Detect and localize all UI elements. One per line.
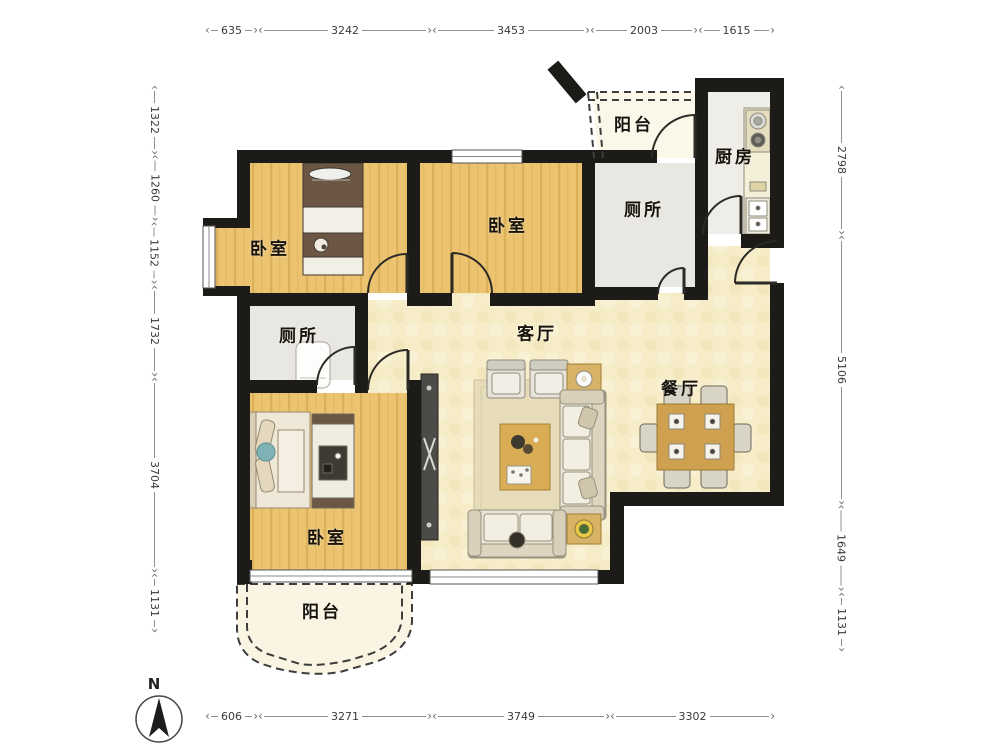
dimension-value: 3242 xyxy=(328,24,362,37)
dimension-line xyxy=(211,30,218,31)
dimension-line xyxy=(155,492,156,567)
master-bed xyxy=(246,412,310,508)
wall xyxy=(684,287,695,300)
dimension-line xyxy=(596,30,627,31)
dimension-line xyxy=(842,91,843,143)
floor-plan-page: 阳台 厨房 厕所 卧室 卧室 客厅 餐厅 厕所 卧室 阳台 635 3242 3… xyxy=(0,0,1000,750)
dimension-line xyxy=(155,91,156,103)
dim-left-5: 1131 xyxy=(147,573,163,633)
dim-top-4: 1615 xyxy=(698,22,775,38)
dim-left-2: 1152 xyxy=(147,222,163,285)
dimension-line xyxy=(841,510,842,531)
dimension-value: 5106 xyxy=(836,353,849,387)
dimension-line xyxy=(842,177,843,229)
dim-top-2: 3453 xyxy=(432,22,590,38)
dim-top-3: 2003 xyxy=(590,22,698,38)
dimension-line xyxy=(264,716,328,717)
room-label-kitchen: 厨房 xyxy=(715,143,755,168)
dimension-line xyxy=(245,30,252,31)
kitchen-counter xyxy=(744,108,772,236)
dim-bottom-0: 606 xyxy=(205,708,258,724)
room-label-toilet-top: 厕所 xyxy=(624,196,664,221)
bedroom-a-wardrobe xyxy=(303,163,363,275)
dimension-value: 1649 xyxy=(835,531,848,565)
wall xyxy=(490,293,595,306)
dimension-line xyxy=(754,30,770,31)
armchair-left xyxy=(487,360,525,398)
sofa-long xyxy=(560,390,606,520)
dimension-value: 3749 xyxy=(504,710,538,723)
wall xyxy=(595,150,657,163)
dimension-line xyxy=(155,348,156,371)
dining-chair xyxy=(732,424,751,452)
dimension-line xyxy=(155,383,156,458)
wall xyxy=(522,150,595,163)
sofa-bottom xyxy=(468,510,566,558)
dimension-line xyxy=(841,565,842,586)
dim-bottom-3: 3302 xyxy=(610,708,775,724)
dimension-line xyxy=(842,598,843,605)
wall xyxy=(407,380,421,584)
dim-top-0: 635 xyxy=(205,22,258,38)
dimension-line xyxy=(245,716,252,717)
dimension-line xyxy=(264,30,328,31)
coffee-table xyxy=(500,424,550,490)
room-label-bedroom-b: 卧室 xyxy=(488,212,528,237)
dim-bottom-1: 3271 xyxy=(258,708,432,724)
room-label-living-room: 客厅 xyxy=(517,320,557,345)
dimension-line xyxy=(710,716,770,717)
compass xyxy=(136,696,182,742)
dimension-line xyxy=(155,137,156,149)
dimension-line xyxy=(155,579,156,586)
room-label-balcony-bottom: 阳台 xyxy=(302,598,342,623)
wall xyxy=(355,300,368,393)
dimension-line xyxy=(842,387,843,499)
dimension-line xyxy=(616,716,676,717)
dimension-line xyxy=(661,30,692,31)
dimension-value: 606 xyxy=(218,710,245,723)
master-wardrobe xyxy=(312,414,354,508)
dimension-line xyxy=(528,30,584,31)
dim-right-0: 2798 xyxy=(834,85,850,235)
dim-left-1: 1260 xyxy=(148,155,164,222)
side-table-bottom xyxy=(567,514,601,544)
dimension-line xyxy=(842,241,843,353)
dimension-value: 1131 xyxy=(836,605,849,639)
wall xyxy=(420,293,452,306)
dimension-value: 3704 xyxy=(149,458,162,492)
dim-bottom-2: 3749 xyxy=(432,708,610,724)
dimension-line xyxy=(155,291,156,314)
wall xyxy=(582,287,658,300)
dimension-value: 1131 xyxy=(149,586,162,620)
dimension-line xyxy=(155,205,156,216)
dimension-value: 3271 xyxy=(328,710,362,723)
room-label-bedroom-a: 卧室 xyxy=(250,235,290,260)
dimension-value: 635 xyxy=(218,24,245,37)
dimension-line xyxy=(362,30,426,31)
room-label-toilet-mid: 厕所 xyxy=(279,322,319,347)
dim-right-2: 1649 xyxy=(834,505,850,592)
dimension-line xyxy=(538,716,604,717)
dimension-value: 3302 xyxy=(676,710,710,723)
dimension-line xyxy=(704,30,720,31)
dimension-line xyxy=(155,160,156,171)
dim-right-3: 1131 xyxy=(834,592,850,652)
dim-top-1: 3242 xyxy=(258,22,432,38)
dimension-value: 1322 xyxy=(149,103,162,137)
dim-right-1: 5106 xyxy=(834,235,850,505)
dimension-value: 1615 xyxy=(720,24,754,37)
wall xyxy=(770,283,784,495)
dimension-line xyxy=(362,716,426,717)
room-label-balcony-top: 阳台 xyxy=(614,111,654,136)
wall xyxy=(237,380,317,393)
dining-chair xyxy=(640,424,659,452)
wall xyxy=(407,163,420,306)
dimension-value: 1260 xyxy=(149,171,162,205)
dimension-value: 3453 xyxy=(494,24,528,37)
wall xyxy=(237,150,250,228)
dimension-value: 1732 xyxy=(149,314,162,348)
dimension-line xyxy=(154,227,155,236)
wall xyxy=(237,150,452,163)
dimension-line xyxy=(154,270,155,279)
dimension-line xyxy=(155,620,156,627)
room-label-bedroom-master: 卧室 xyxy=(307,524,347,549)
wall xyxy=(598,570,624,584)
dim-left-3: 1732 xyxy=(147,285,163,377)
wall xyxy=(695,85,708,300)
dimension-line xyxy=(438,716,504,717)
wall xyxy=(582,163,595,300)
dimension-value: 1152 xyxy=(148,236,161,270)
wall xyxy=(237,293,368,306)
dimension-value: 2798 xyxy=(836,143,849,177)
balcony-corner-pillar xyxy=(547,61,586,104)
dimension-value: 2003 xyxy=(627,24,661,37)
tv-cabinet xyxy=(421,374,438,540)
wall xyxy=(770,78,784,248)
dimension-line xyxy=(211,716,218,717)
dimension-line xyxy=(842,639,843,646)
bedroom-a-bay-floor xyxy=(213,228,250,286)
dim-left-0: 1322 xyxy=(147,85,163,155)
compass-north-label: N xyxy=(148,675,161,693)
dim-left-4: 3704 xyxy=(147,377,163,573)
room-label-dining-room: 餐厅 xyxy=(661,375,701,400)
wall xyxy=(610,492,784,506)
dimension-line xyxy=(438,30,494,31)
wall xyxy=(237,286,250,584)
